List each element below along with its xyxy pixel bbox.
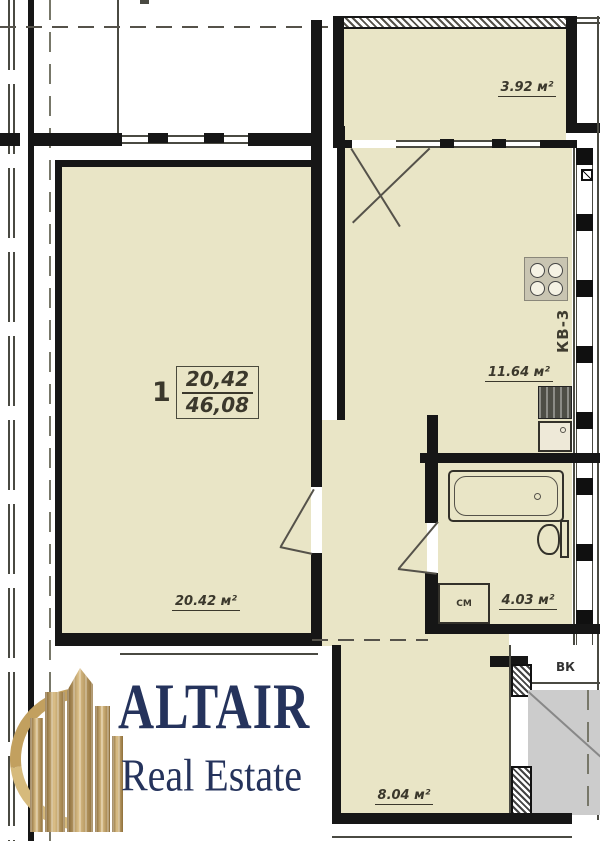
kitchen-area-label: 11.64 м² bbox=[472, 365, 566, 380]
bathroom-area-label: 4.03 м² bbox=[488, 593, 568, 608]
wall bbox=[140, 0, 149, 4]
wall bbox=[573, 148, 575, 645]
wall bbox=[30, 133, 122, 146]
wall bbox=[577, 22, 600, 24]
window-mullion bbox=[440, 139, 454, 148]
wall bbox=[117, 0, 119, 134]
stove-burner bbox=[530, 281, 545, 296]
column-icon bbox=[511, 766, 532, 820]
window-line bbox=[122, 142, 248, 144]
bathtub-drain bbox=[534, 493, 541, 500]
window-mullion bbox=[204, 133, 224, 143]
toilet-tank bbox=[560, 520, 569, 558]
window-strip bbox=[576, 148, 593, 645]
bathtub-icon bbox=[448, 470, 564, 522]
wall bbox=[248, 133, 312, 146]
logo-building-icon bbox=[45, 692, 65, 832]
wall bbox=[427, 415, 438, 455]
sink-icon bbox=[538, 421, 572, 452]
wall bbox=[425, 624, 600, 634]
balcony-area-label: 3.92 м² bbox=[482, 80, 572, 95]
wall bbox=[311, 20, 322, 487]
balcony-exterior-wall bbox=[333, 16, 577, 29]
wall bbox=[425, 453, 438, 523]
logo-building-icon bbox=[30, 718, 43, 832]
wall bbox=[311, 553, 322, 646]
logo-building-icon bbox=[95, 706, 110, 832]
area-fraction-box: 20,42 46,08 bbox=[176, 366, 259, 419]
wall bbox=[333, 140, 352, 148]
sink-drain bbox=[560, 427, 566, 433]
apartment-number: 1 bbox=[152, 377, 171, 408]
wall bbox=[509, 645, 511, 815]
toilet-icon bbox=[537, 524, 560, 555]
window-mullion bbox=[148, 133, 168, 143]
wall bbox=[333, 16, 344, 148]
wall bbox=[332, 813, 572, 824]
bathtub-inner bbox=[454, 476, 558, 516]
stairwell-area bbox=[528, 690, 600, 815]
corridor bbox=[322, 420, 427, 646]
logo-building-icon bbox=[67, 668, 93, 832]
hallway-room bbox=[341, 634, 509, 814]
washing-machine-icon: СМ bbox=[438, 583, 490, 624]
wall bbox=[540, 140, 577, 148]
stove-icon bbox=[524, 257, 568, 301]
floor-plan: СМ 3.92 м² 11.64 м² 20.42 м² 4.03 м² 8.0… bbox=[0, 0, 600, 841]
axis-centerline bbox=[0, 26, 335, 28]
logo: ALTAIR Real Estate bbox=[0, 655, 345, 841]
wall bbox=[420, 453, 600, 463]
wall bbox=[566, 16, 577, 126]
wall bbox=[528, 682, 600, 684]
living-area-label: 20.42 м² bbox=[160, 594, 252, 609]
stove-burner bbox=[548, 281, 563, 296]
stove-burner bbox=[548, 263, 563, 278]
washing-machine-label: СМ bbox=[456, 599, 472, 609]
vent-icon bbox=[581, 169, 593, 181]
logo-subtitle: Real Estate bbox=[121, 748, 302, 802]
wall bbox=[0, 133, 20, 146]
wall bbox=[577, 17, 600, 19]
window-line bbox=[122, 135, 248, 137]
fridge-icon bbox=[538, 386, 572, 419]
wall bbox=[337, 126, 345, 420]
wall bbox=[55, 633, 318, 646]
apartment-stamp: 1 20,42 46,08 bbox=[152, 366, 259, 419]
axis-centerline bbox=[312, 639, 428, 641]
total-area-value: 46,08 bbox=[182, 394, 253, 417]
wall bbox=[55, 160, 62, 646]
window-mullion bbox=[492, 139, 506, 148]
wall bbox=[332, 836, 572, 838]
wall bbox=[566, 123, 600, 133]
living-area-value: 20,42 bbox=[182, 368, 253, 394]
logo-title: ALTAIR bbox=[118, 668, 310, 743]
wall bbox=[55, 160, 312, 167]
window-line bbox=[396, 140, 540, 142]
window-line bbox=[396, 146, 540, 148]
axis-centerline bbox=[587, 690, 589, 815]
stair-label: ВК bbox=[556, 660, 575, 674]
apartment-code-label: КВ-3 bbox=[554, 309, 572, 353]
hallway-area-label: 8.04 м² bbox=[363, 788, 445, 803]
stove-burner bbox=[530, 263, 545, 278]
